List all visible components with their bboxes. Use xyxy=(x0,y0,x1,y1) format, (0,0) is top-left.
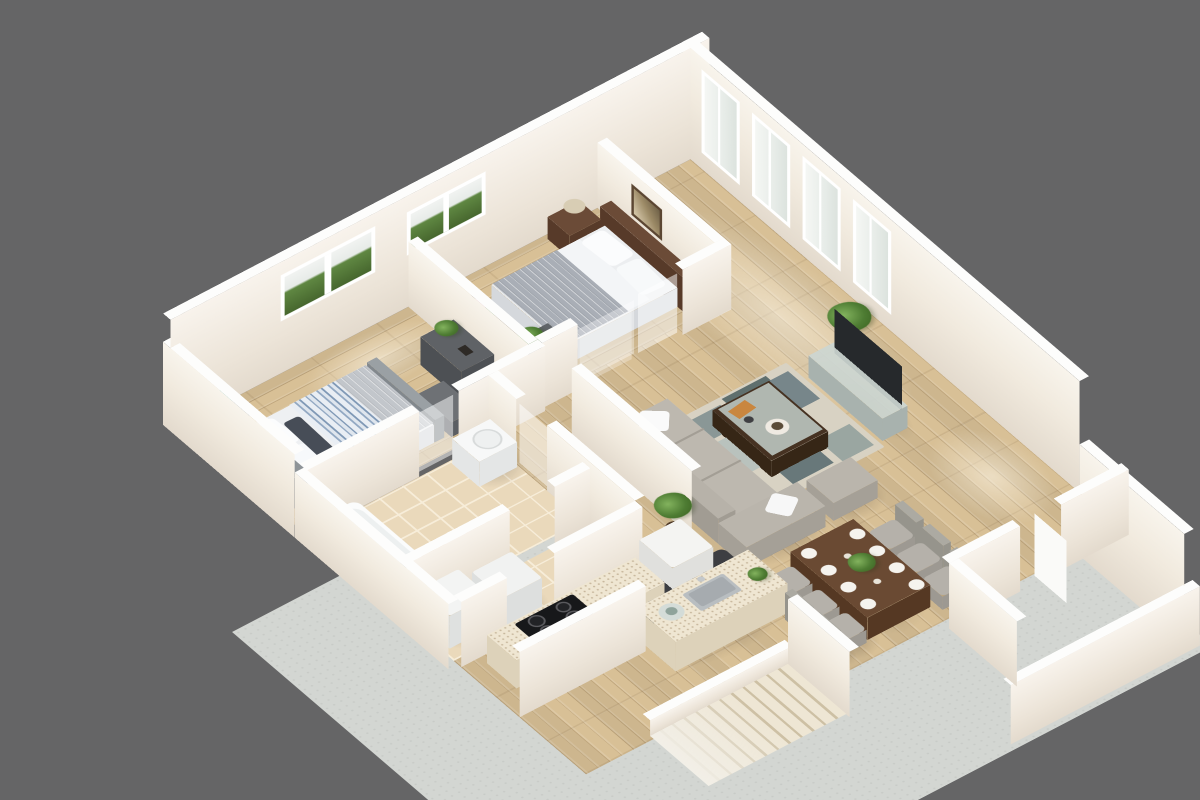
window-glass xyxy=(755,119,787,222)
window-glass xyxy=(856,205,888,308)
window-frame xyxy=(752,113,790,229)
window-frame xyxy=(702,69,740,185)
window-glass xyxy=(705,76,737,179)
window-frame xyxy=(853,199,891,315)
window-glass xyxy=(806,162,838,265)
floor-plan xyxy=(180,154,1180,800)
window-frame xyxy=(281,226,376,322)
floor-plan-render xyxy=(0,0,1200,800)
window-frame xyxy=(803,156,841,272)
